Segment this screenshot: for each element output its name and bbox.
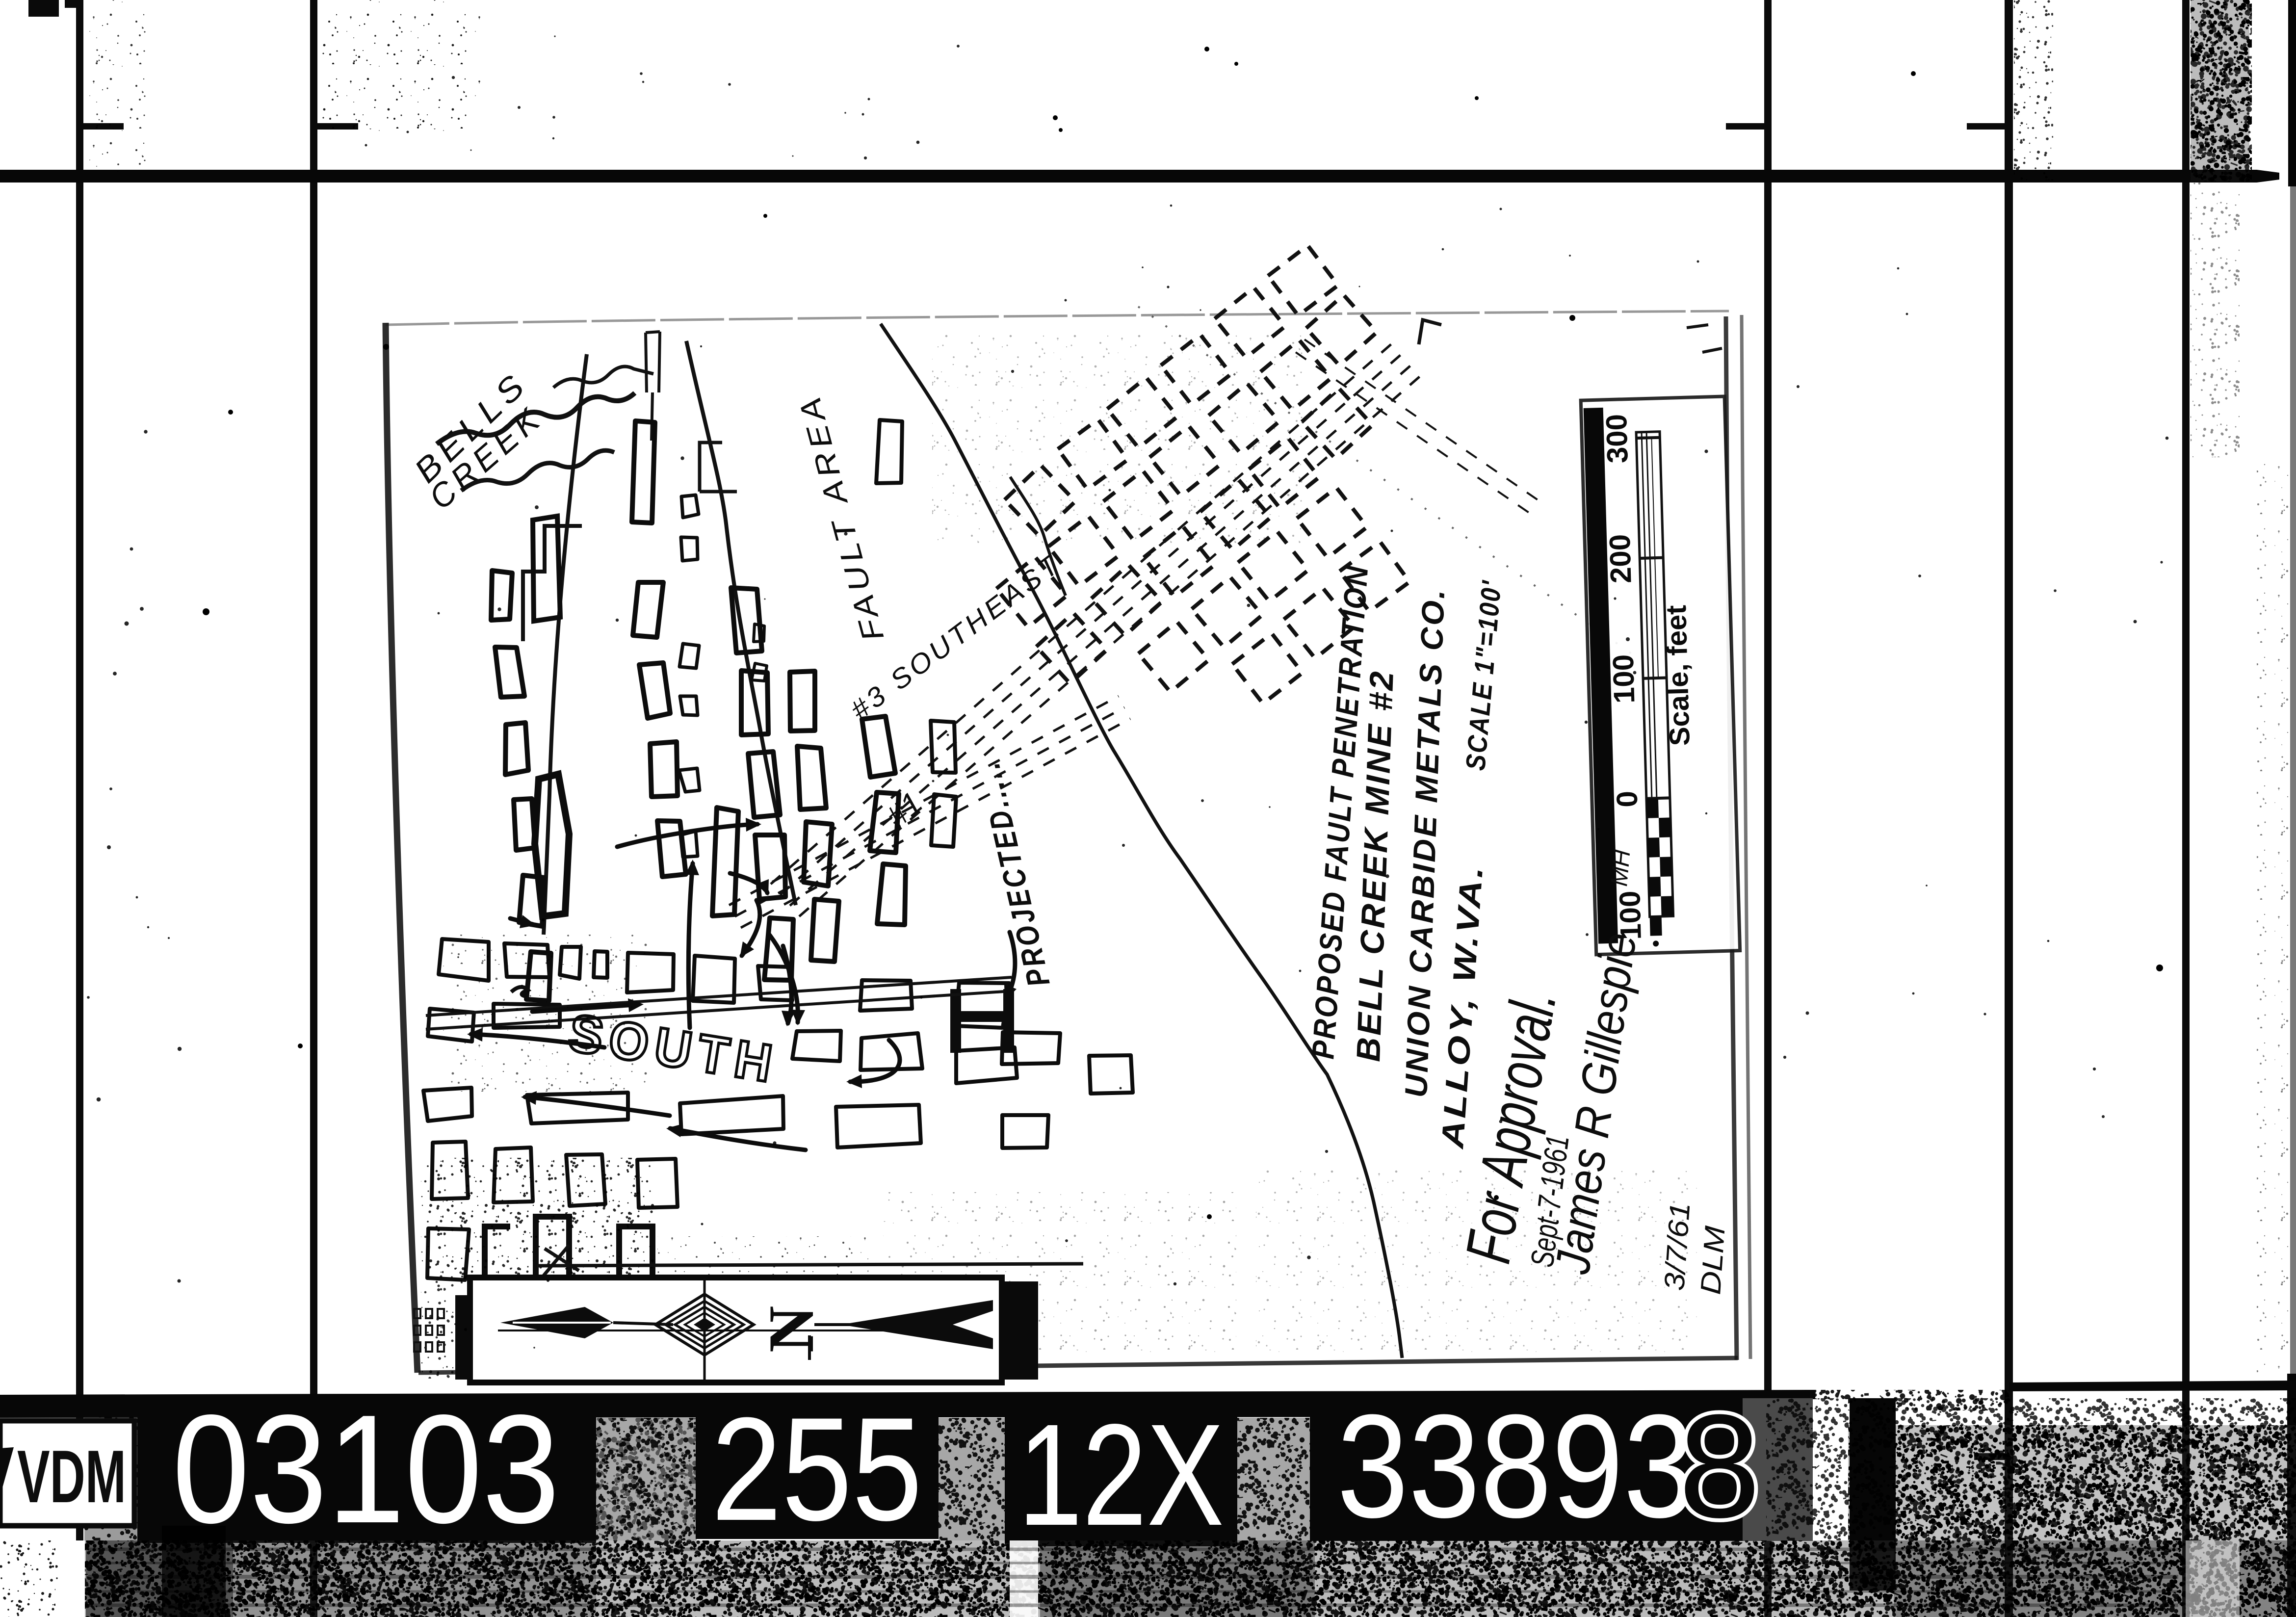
svg-text:Scale, feet: Scale, feet bbox=[1660, 605, 1696, 747]
svg-text:03103: 03103 bbox=[172, 1382, 560, 1555]
svg-text:0: 0 bbox=[1610, 790, 1644, 808]
svg-text:300: 300 bbox=[1600, 414, 1634, 464]
svg-text:200: 200 bbox=[1603, 534, 1638, 584]
svg-text:100: 100 bbox=[1607, 654, 1641, 704]
svg-text:VDM: VDM bbox=[17, 1435, 126, 1518]
svg-text:100: 100 bbox=[1613, 890, 1647, 940]
svg-text:8: 8 bbox=[1679, 1383, 1761, 1548]
svg-text:12X: 12X bbox=[1018, 1394, 1224, 1556]
svg-text:MH: MH bbox=[1606, 849, 1635, 887]
svg-text:33893: 33893 bbox=[1337, 1383, 1695, 1548]
svg-text:255: 255 bbox=[711, 1386, 922, 1551]
svg-text:DLM: DLM bbox=[1695, 1225, 1731, 1296]
svg-text:N: N bbox=[755, 1306, 827, 1353]
